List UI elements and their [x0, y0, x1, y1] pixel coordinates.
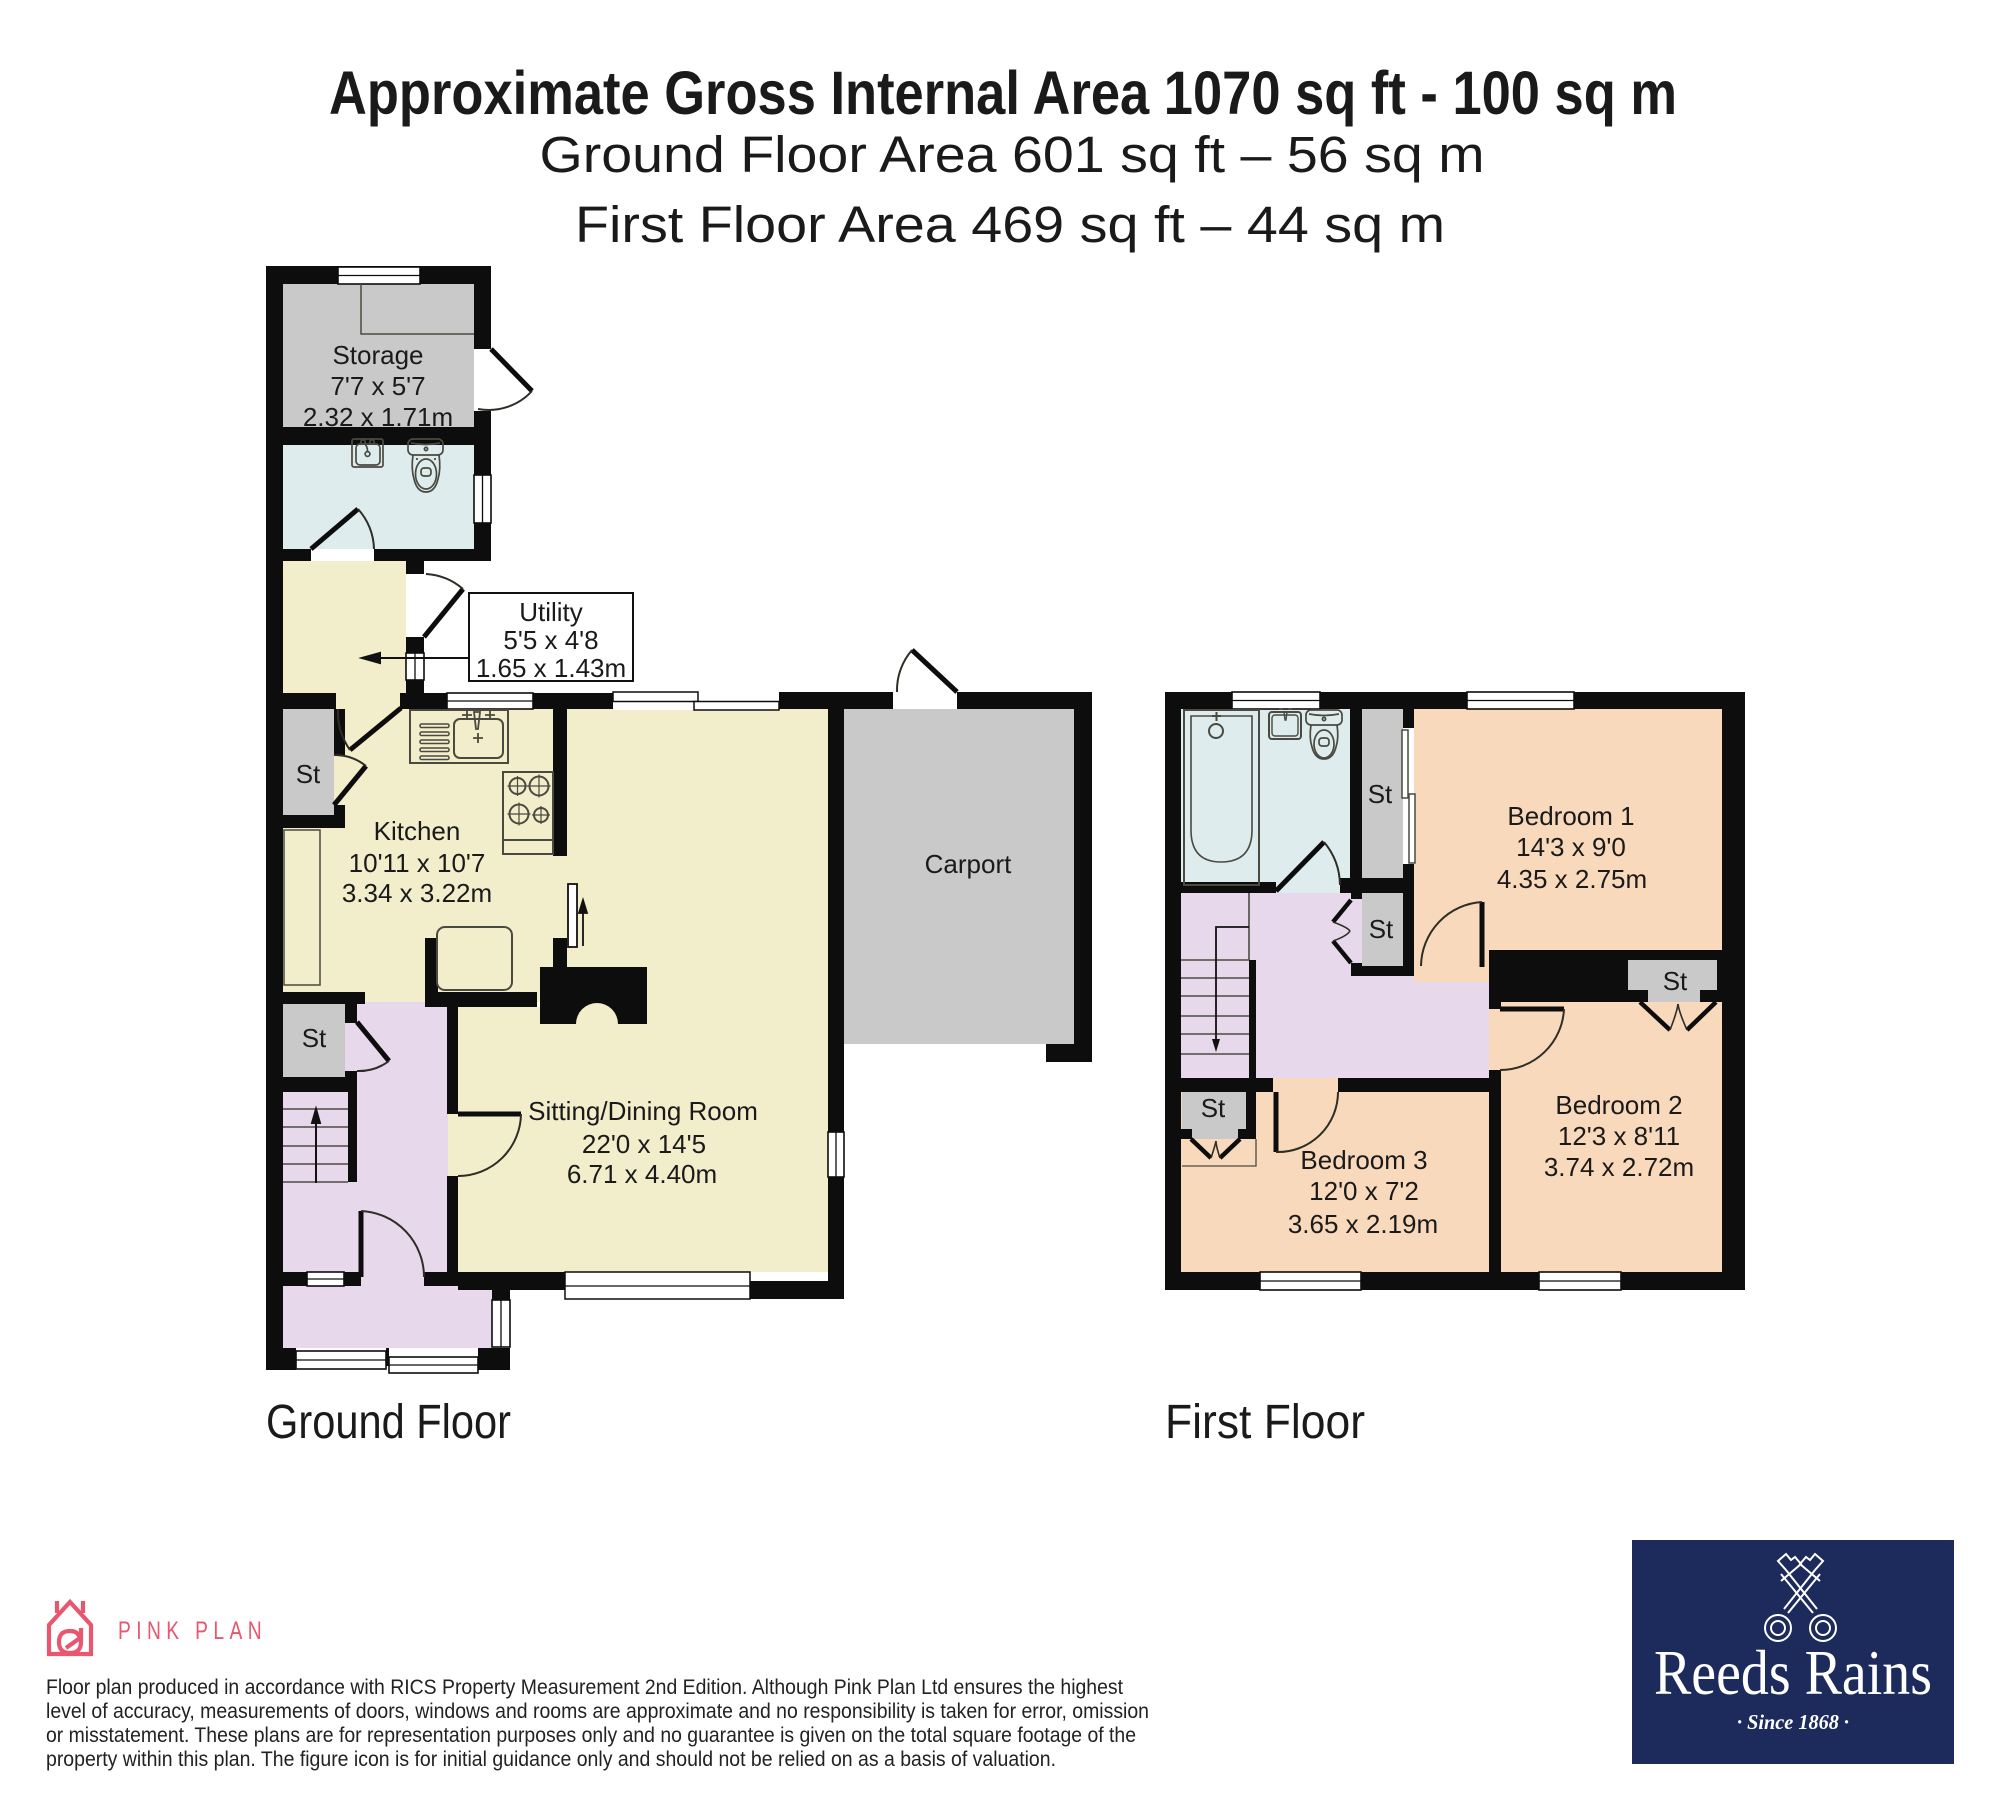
svg-text:St: St	[1368, 779, 1393, 809]
svg-text:3.34 x 3.22m: 3.34 x 3.22m	[342, 878, 492, 908]
svg-text:Reeds Rains: Reeds Rains	[1654, 1637, 1932, 1708]
svg-text:St: St	[296, 759, 321, 789]
svg-text:12'3 x 8'11: 12'3 x 8'11	[1558, 1121, 1680, 1151]
svg-text:Bedroom 2: Bedroom 2	[1555, 1090, 1682, 1120]
svg-text:3.74 x 2.72m: 3.74 x 2.72m	[1544, 1152, 1694, 1182]
svg-text:St: St	[1369, 914, 1394, 944]
svg-text:Carport: Carport	[925, 849, 1012, 879]
svg-text:14'3 x 9'0: 14'3 x 9'0	[1516, 832, 1626, 862]
svg-text:St: St	[1201, 1093, 1226, 1123]
svg-text:12'0 x 7'2: 12'0 x 7'2	[1309, 1176, 1419, 1206]
svg-text:Floor plan produced in accorda: Floor plan produced in accordance with R…	[46, 1676, 1123, 1699]
svg-text:3.65 x 2.19m: 3.65 x 2.19m	[1288, 1209, 1438, 1239]
svg-text:1.65 x 1.43m: 1.65 x 1.43m	[476, 653, 626, 683]
svg-text:22'0 x 14'5: 22'0 x 14'5	[582, 1129, 706, 1159]
svg-text:St: St	[1663, 966, 1688, 996]
svg-text:St: St	[302, 1023, 327, 1053]
svg-text:5'5 x 4'8: 5'5 x 4'8	[503, 625, 598, 655]
svg-text:2.32 x 1.71m: 2.32 x 1.71m	[303, 402, 453, 432]
svg-text:Ground Floor Area 601 sq ft –: Ground Floor Area 601 sq ft – 56 sq m	[540, 126, 1485, 183]
svg-text:Storage: Storage	[332, 340, 423, 370]
svg-text:PINK PLAN: PINK PLAN	[118, 1617, 267, 1645]
svg-text:or misstatement. These plans a: or misstatement. These plans are for rep…	[46, 1724, 1136, 1747]
svg-text:· Since 1868 ·: · Since 1868 ·	[1737, 1710, 1849, 1734]
svg-text:6.71 x 4.40m: 6.71 x 4.40m	[567, 1159, 717, 1189]
svg-text:Utility: Utility	[519, 597, 583, 627]
svg-text:Ground Floor: Ground Floor	[266, 1396, 511, 1449]
svg-text:First Floor: First Floor	[1165, 1396, 1365, 1449]
svg-text:Bedroom 1: Bedroom 1	[1507, 801, 1634, 831]
svg-text:Sitting/Dining Room: Sitting/Dining Room	[528, 1096, 758, 1126]
svg-text:Kitchen: Kitchen	[374, 816, 461, 846]
svg-text:level of accuracy, measurement: level of accuracy, measurements of doors…	[46, 1700, 1149, 1723]
svg-text:4.35 x 2.75m: 4.35 x 2.75m	[1497, 864, 1647, 894]
svg-text:7'7 x 5'7: 7'7 x 5'7	[330, 371, 425, 401]
svg-text:10'11 x 10'7: 10'11 x 10'7	[349, 848, 486, 878]
svg-text:Bedroom 3: Bedroom 3	[1300, 1145, 1427, 1175]
svg-text:Approximate Gross Internal Are: Approximate Gross Internal Area 1070 sq …	[329, 59, 1677, 127]
svg-text:property within this plan. The: property within this plan. The figure ic…	[46, 1748, 1056, 1771]
svg-text:First Floor Area 469 sq ft – 4: First Floor Area 469 sq ft – 44 sq m	[575, 196, 1445, 253]
